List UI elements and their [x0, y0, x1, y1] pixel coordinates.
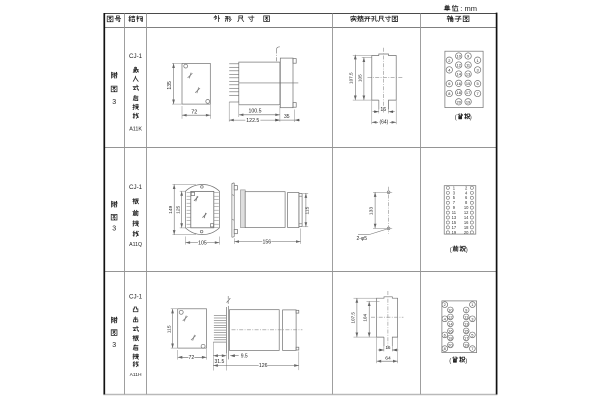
svg-text:10: 10 [448, 307, 453, 312]
svg-text:8: 8 [448, 91, 450, 96]
svg-text:12: 12 [457, 63, 461, 68]
svg-text:5: 5 [477, 81, 479, 86]
svg-text:(: ( [455, 115, 457, 121]
svg-text:CJ-1: CJ-1 [129, 53, 143, 60]
svg-text:3: 3 [112, 342, 116, 349]
svg-text:16: 16 [380, 107, 386, 113]
svg-text:16: 16 [457, 81, 461, 86]
svg-text:16: 16 [386, 345, 391, 350]
svg-text:72: 72 [189, 355, 195, 361]
svg-text:3: 3 [477, 68, 479, 73]
svg-text::: : [460, 4, 462, 13]
svg-text:125: 125 [176, 205, 182, 213]
svg-text:19: 19 [464, 342, 469, 347]
svg-text:156: 156 [262, 239, 271, 245]
svg-text:3: 3 [112, 226, 116, 233]
svg-text:133: 133 [369, 207, 375, 215]
svg-text:A11H: A11H [130, 372, 142, 378]
svg-text:2: 2 [448, 58, 450, 63]
svg-text:): ) [470, 115, 472, 121]
svg-text:19: 19 [452, 230, 457, 235]
svg-text:104: 104 [363, 314, 368, 322]
svg-text:20: 20 [448, 342, 453, 347]
svg-text:17: 17 [466, 90, 470, 95]
svg-text:64: 64 [385, 355, 391, 361]
svg-text:100.5: 100.5 [249, 109, 262, 115]
svg-text:115: 115 [166, 325, 172, 333]
svg-text:13: 13 [464, 321, 469, 326]
svg-text:): ) [466, 248, 468, 254]
svg-text:107.5: 107.5 [349, 72, 354, 84]
svg-text:17: 17 [464, 335, 469, 340]
svg-text:107.5: 107.5 [350, 312, 355, 324]
svg-text:CJ-1: CJ-1 [129, 184, 143, 191]
svg-text:72: 72 [191, 109, 197, 115]
svg-text:18: 18 [457, 90, 461, 95]
svg-text:3: 3 [112, 99, 116, 106]
svg-text:9.5: 9.5 [241, 354, 248, 360]
svg-text:mm: mm [465, 4, 478, 13]
svg-text:115: 115 [304, 206, 310, 214]
svg-text:15: 15 [466, 81, 470, 86]
svg-text:19: 19 [466, 99, 470, 104]
svg-text:1: 1 [477, 58, 479, 63]
svg-text:105: 105 [357, 74, 362, 82]
svg-text:35: 35 [284, 114, 290, 120]
svg-text:31.5: 31.5 [215, 359, 225, 365]
svg-text:135: 135 [167, 81, 173, 90]
svg-text:7: 7 [477, 91, 479, 96]
svg-text:13: 13 [466, 72, 470, 77]
svg-text:CJ-1: CJ-1 [129, 294, 143, 301]
svg-text:A11Q: A11Q [129, 242, 142, 248]
svg-text:11: 11 [466, 63, 470, 68]
svg-text:12: 12 [448, 314, 453, 319]
svg-text:9: 9 [467, 54, 469, 59]
svg-text:15: 15 [464, 328, 469, 333]
svg-text:126: 126 [259, 363, 268, 369]
svg-text:18: 18 [448, 335, 453, 340]
svg-text:6: 6 [448, 81, 450, 86]
svg-text:14: 14 [448, 321, 453, 326]
svg-text:20: 20 [464, 230, 469, 235]
svg-text:16: 16 [448, 328, 453, 333]
svg-text:A11K: A11K [129, 127, 142, 133]
svg-text:(64): (64) [379, 120, 388, 126]
svg-text:122.5: 122.5 [246, 118, 259, 124]
svg-text:2-φ5: 2-φ5 [357, 236, 368, 242]
svg-text:(: ( [450, 248, 452, 254]
svg-text:149: 149 [168, 205, 174, 213]
svg-text:): ) [465, 358, 467, 364]
svg-text:105: 105 [198, 240, 207, 246]
svg-text:(: ( [449, 358, 451, 364]
